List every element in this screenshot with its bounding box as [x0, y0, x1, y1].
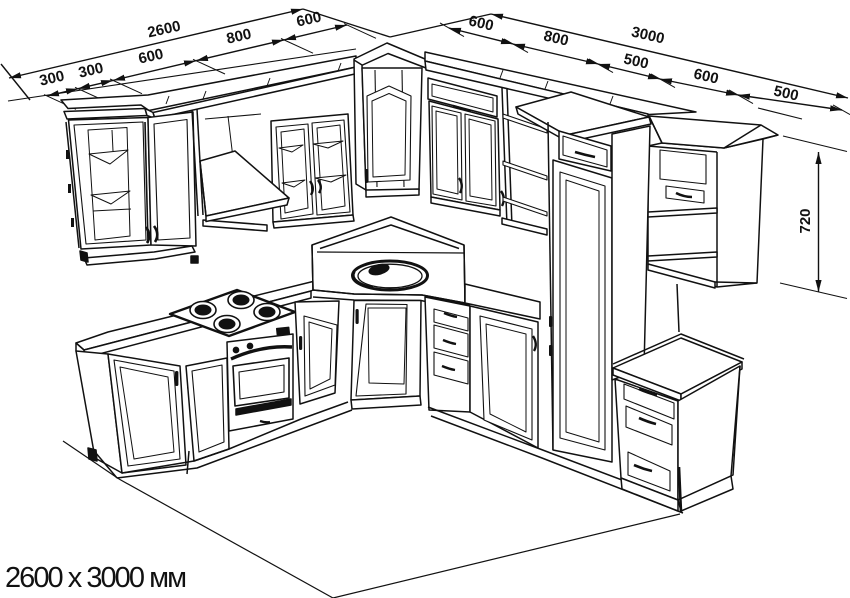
svg-text:720: 720 [797, 208, 814, 233]
svg-text:2600 x 3000 мм: 2600 x 3000 мм [5, 562, 187, 594]
